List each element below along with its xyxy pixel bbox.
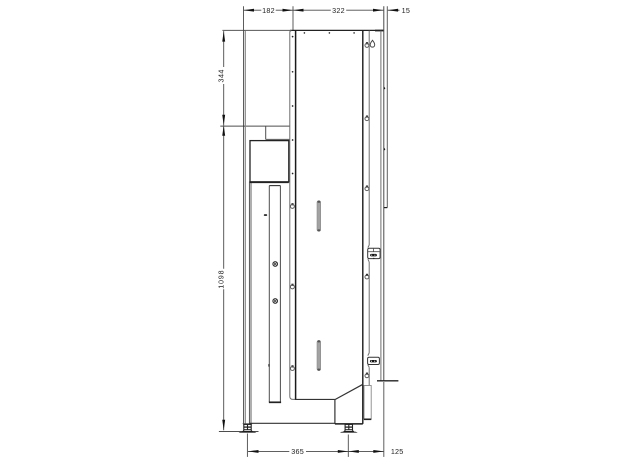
svg-text:1098: 1098 <box>217 270 226 289</box>
svg-text:344: 344 <box>217 69 226 82</box>
svg-text:365: 365 <box>291 447 304 456</box>
svg-text:322: 322 <box>332 6 345 15</box>
svg-text:15: 15 <box>402 6 411 15</box>
svg-text:182: 182 <box>262 6 275 15</box>
svg-text:125: 125 <box>391 447 404 456</box>
